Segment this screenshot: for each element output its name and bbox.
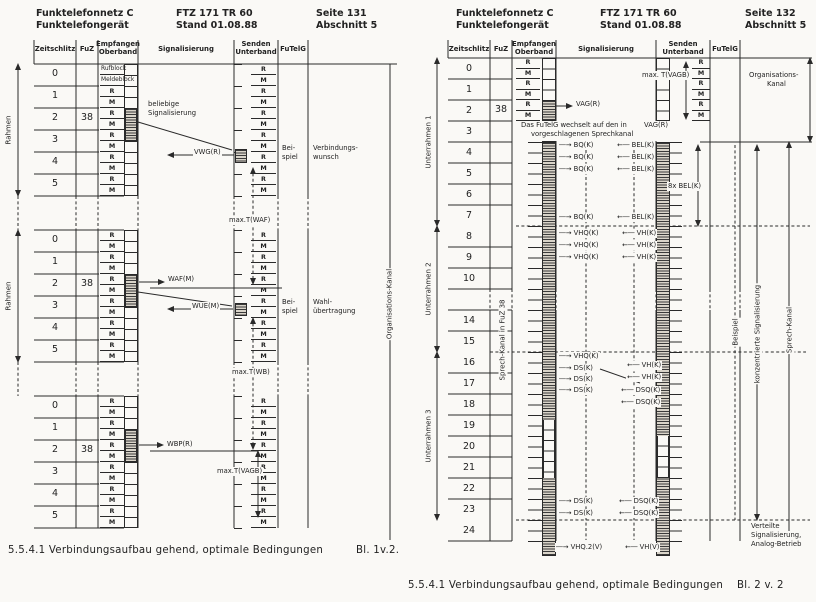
senden-cell: R (251, 86, 276, 97)
senden-cell: R (251, 340, 276, 351)
channel-switch-note-line: Das FuTelG wechselt auf den in (520, 121, 628, 130)
column-header: Empfangen Oberband (84, 40, 152, 57)
doc-ref-left: FTZ 171 TR 60Stand 01.08.88 (176, 8, 258, 31)
empfangen-cell: R (516, 100, 540, 111)
slot-number: 0 (457, 64, 481, 74)
empfangen-cell: M (100, 263, 124, 274)
senden-cell: M (251, 141, 276, 152)
senden-cell: R (251, 174, 276, 185)
empfangen-cell: R (100, 462, 124, 473)
slot-number: 8 (457, 232, 481, 242)
slot-number: 2 (43, 445, 67, 455)
speech-channel-fuz-label: Sprech-Kanal in FuZ 38 (499, 299, 508, 382)
senden-cell: M (251, 97, 276, 108)
empfangen-cell: M (100, 517, 124, 528)
senden-cell: R (692, 58, 710, 69)
slot-number: 0 (43, 235, 67, 245)
empfangen-cell: M (100, 307, 124, 318)
slot-number: 1 (457, 85, 481, 95)
empfangen-cell: R (100, 296, 124, 307)
sig-label: VAG(R) (643, 121, 669, 130)
slot-number: 17 (457, 379, 481, 389)
senden-cell: R (251, 396, 276, 407)
empfangen-cell: R (516, 79, 540, 90)
senden-cell: R (692, 100, 710, 111)
slot-number: 23 (457, 505, 481, 515)
senden-cell: M (692, 90, 710, 101)
senden-cell: M (251, 351, 276, 362)
sig-label: ←― DSQ(K) (620, 386, 661, 395)
sig-label: ←― VH(V) (624, 543, 660, 552)
sig-label: ―→ DS(K) (558, 386, 594, 395)
waf-signal-hatch (125, 274, 137, 307)
senden-cell: M (251, 307, 276, 318)
empfangen-cell: R (100, 274, 124, 285)
slot-number: 4 (43, 323, 67, 333)
slot-number: 5 (43, 179, 67, 189)
empfangen-cell: R (100, 130, 124, 141)
sheet-right: Bl. 2 v. 2 (737, 580, 784, 592)
senden-cell: R (251, 252, 276, 263)
slot-number: 24 (457, 526, 481, 536)
organisation-channel-label: Organisations- (748, 71, 799, 80)
senden-cell: M (692, 69, 710, 80)
slot-number: 6 (457, 190, 481, 200)
empfangen-cell: R (516, 58, 540, 69)
senden-cell: M (251, 163, 276, 174)
slot-number: 4 (457, 148, 481, 158)
slot-number: 3 (43, 467, 67, 477)
senden-cell: R (251, 274, 276, 285)
sig-label: 8x BEL(K) (667, 182, 702, 191)
organisation-channel-label: Kanal (766, 80, 787, 89)
vwg-signal-hatch (235, 149, 247, 163)
empfangen-cell: M (100, 329, 124, 340)
distributed-signalling-label: Verteilte (750, 522, 781, 531)
empfangen-cell: M (100, 97, 124, 108)
empfangen-cell: R (100, 252, 124, 263)
wue-signal-hatch (235, 303, 247, 316)
slot-number: 38 (76, 279, 98, 289)
senden-cell: M (251, 285, 276, 296)
sig-label: ―→ VHQ(K) (558, 241, 600, 250)
empfangen-cell: Rufblock (100, 64, 125, 75)
sig-label: ←― BEL(K) (616, 153, 655, 162)
sig-label: ―→ DS(K) (558, 509, 594, 518)
empfangen-cell: M (100, 351, 124, 362)
slot-number: 5 (43, 511, 67, 521)
annotation: Wahl- (312, 298, 333, 307)
empty-cells-block (543, 420, 555, 478)
organisation-channel-label: Organisations-Kanal (386, 268, 395, 340)
empfangen-cell: R (100, 340, 124, 351)
empfangen-cell: R (100, 440, 124, 451)
sig-label: ―→ VHQ(K) (558, 229, 600, 238)
futelg-example: Bei- (281, 144, 296, 153)
senden-cell: R (251, 506, 276, 517)
senden-cell: M (251, 119, 276, 130)
sig-label: ←― BEL(K) (616, 165, 655, 174)
senden-cell: R (251, 64, 276, 75)
sig-label: max. T(VAGB) (641, 71, 690, 80)
senden-cell: R (251, 230, 276, 241)
sig-label: ―→ BQ(K) (558, 153, 594, 162)
caption-left: 5.5.4.1 Verbindungsaufbau gehend, optima… (8, 545, 323, 557)
beispiel-label: Beispiel (732, 317, 741, 346)
empfangen-cell: R (100, 418, 124, 429)
empfangen-cell: M (516, 90, 540, 101)
sig-label: ―→ DS(K) (558, 497, 594, 506)
sig-label: beliebige (147, 100, 180, 109)
sheet-left: Bl. 1v.2. (356, 545, 399, 557)
sig-label: ←― VH(K) (621, 229, 657, 238)
sig-label: ―→ BQ(K) (558, 213, 594, 222)
senden-cell: R (692, 79, 710, 90)
senden-cell: R (251, 152, 276, 163)
distributed-signalling-label: Signalisierung, (750, 531, 802, 540)
page-title-right: Funktelefonnetz CFunktelefongerät (456, 8, 554, 31)
senden-cell: R (251, 130, 276, 141)
senden-cell: R (251, 318, 276, 329)
sig-label: ←― DSQ(K) (620, 398, 661, 407)
slot-number: 3 (457, 127, 481, 137)
empfangen-cell: M (100, 185, 124, 196)
slot-number: 14 (457, 316, 481, 326)
empfangen-cell: R (100, 230, 124, 241)
speech-uplink-hatch (542, 142, 556, 556)
empfangen-cell: R (100, 396, 124, 407)
empfangen-cell: M (100, 429, 124, 440)
sig-label: WAF(M) (167, 275, 195, 284)
sig-label: ←― VH(K) (621, 241, 657, 250)
empfangen-cell: R (100, 86, 124, 97)
slot-number: 4 (43, 489, 67, 499)
empfangen-cell: R (100, 152, 124, 163)
scanned-diagram-page: Funktelefonnetz CFunktelefongerät FTZ 17… (0, 0, 816, 602)
slot-number: 3 (43, 135, 67, 145)
empfangen-cell: R (100, 174, 124, 185)
empty-cells-block (657, 436, 669, 478)
empfangen-cell: R (100, 484, 124, 495)
column-header: FuTelG (259, 45, 327, 53)
slot-number: 38 (76, 113, 98, 123)
senden-cell: M (251, 451, 276, 462)
senden-cell: R (251, 296, 276, 307)
slot-number: 38 (491, 105, 511, 115)
sig-label: ←― DSQ(K) (618, 509, 659, 518)
empfangen-cell: Meldeblock (100, 75, 125, 86)
page-title-left: Funktelefonnetz CFunktelefongerät (36, 8, 134, 31)
futelg-example: spiel (281, 307, 299, 316)
frame-bracket-label: Rahmen (5, 115, 14, 146)
senden-cell: R (251, 440, 276, 451)
column-header: FuTelG (691, 45, 759, 53)
annotation: Verbindungs- (312, 144, 359, 153)
senden-cell: M (251, 517, 276, 528)
senden-cell: M (251, 185, 276, 196)
senden-cell: R (251, 108, 276, 119)
senden-cell: M (251, 329, 276, 340)
slot-number: 9 (457, 253, 481, 263)
sig-label: max.T(WAF) (228, 216, 271, 225)
senden-cell: R (251, 484, 276, 495)
senden-cell: M (251, 263, 276, 274)
sig-label: Signalisierung (147, 109, 197, 118)
vag-signal-hatch (542, 100, 556, 121)
slot-number: 4 (43, 157, 67, 167)
sig-label: ←― DSQ(K) (618, 497, 659, 506)
empfangen-cell: M (100, 495, 124, 506)
empfangen-cell: M (100, 451, 124, 462)
slot-number: 20 (457, 442, 481, 452)
slot-number: 3 (43, 301, 67, 311)
slot-number: 38 (76, 445, 98, 455)
column-header: Signalisierung (572, 45, 640, 53)
sig-label: max.T(WB) (231, 368, 271, 377)
slot-number: 2 (457, 106, 481, 116)
slot-number: 15 (457, 337, 481, 347)
empfangen-cell: M (100, 473, 124, 484)
senden-cell: M (692, 111, 710, 122)
speech-channel-label: Sprech-Kanal (786, 306, 795, 354)
sig-label: ―→ DS(K) (558, 375, 594, 384)
slot-number: 0 (43, 401, 67, 411)
column-header: Empfangen Oberband (500, 40, 568, 57)
empfangen-cell: M (100, 119, 124, 130)
sig-label: ―→ VHQ(K) (558, 253, 600, 262)
frame-bracket-label: Rahmen (5, 281, 14, 312)
slot-number: 22 (457, 484, 481, 494)
sig-label: ←― VH(K) (626, 373, 662, 382)
doc-ref-right: FTZ 171 TR 60Stand 01.08.88 (600, 8, 682, 31)
speech-downlink-hatch (656, 142, 670, 556)
sig-label: VAG(R) (575, 100, 601, 109)
slot-number: 19 (457, 421, 481, 431)
caption-right: 5.5.4.1 Verbindungsaufbau gehend, optima… (408, 580, 723, 592)
slot-number: 16 (457, 358, 481, 368)
channel-switch-note-line: vorgeschlagenen Sprechkanal (530, 130, 634, 139)
sig-label: ←― VH(K) (621, 253, 657, 262)
slot-number: 10 (457, 274, 481, 284)
senden-cell: R (251, 418, 276, 429)
senden-cell: M (251, 429, 276, 440)
sig-label: WUE(M) (191, 302, 220, 311)
slot-number: 1 (43, 423, 67, 433)
senden-cell: M (251, 241, 276, 252)
slot-number: 0 (43, 69, 67, 79)
sig-label: ←― VH(K) (626, 361, 662, 370)
futelg-example: spiel (281, 153, 299, 162)
sig-label: ―→ BQ(K) (558, 165, 594, 174)
empfangen-cell: R (100, 506, 124, 517)
subframe-bracket-label: Unterrahmen 3 (425, 408, 434, 463)
empfangen-cell: M (100, 285, 124, 296)
annotation: übertragung (312, 307, 356, 316)
sig-label: VWG(R) (193, 148, 222, 157)
sig-label: WBP(R) (166, 440, 194, 449)
wbp-signal-hatch (125, 429, 137, 462)
empfangen-cell: R (100, 108, 124, 119)
empfangen-cell: M (100, 241, 124, 252)
slot-number: 1 (43, 257, 67, 267)
slot-number: 1 (43, 91, 67, 101)
slot-number: 2 (43, 279, 67, 289)
column-header: Signalisierung (152, 45, 220, 53)
slot-number: 7 (457, 211, 481, 221)
senden-cell: M (251, 407, 276, 418)
empfangen-cell: M (100, 141, 124, 152)
empfangen-cell: M (100, 407, 124, 418)
senden-cell: M (251, 495, 276, 506)
empfangen-cell: M (516, 69, 540, 80)
empfangen-cell: M (516, 111, 540, 122)
empfangen-cell: R (100, 318, 124, 329)
sig-label: ―→ BQ(K) (558, 141, 594, 150)
concentrated-signalling-label: konzentrierte Signalisierung (754, 284, 763, 385)
futelg-example: Bei- (281, 298, 296, 307)
distributed-signalling-label: Analog-Betrieb (750, 540, 802, 549)
slot-number: 21 (457, 463, 481, 473)
sig-label: max.T(VAGB) (216, 467, 263, 476)
sig-label: ―→ VHQ(K) (558, 352, 600, 361)
slot-number: 5 (43, 345, 67, 355)
subframe-bracket-label: Unterrahmen 1 (425, 114, 434, 169)
slot-number: 5 (457, 169, 481, 179)
page-number-left: Seite 131Abschnitt 5 (316, 8, 377, 31)
empfangen-cell: M (100, 163, 124, 174)
beliebige-signal-hatch (125, 108, 137, 141)
page-number-right: Seite 132Abschnitt 5 (745, 8, 806, 31)
slot-number: 2 (43, 113, 67, 123)
senden-cell: M (251, 75, 276, 86)
sig-label: ―→ VHQ.2(V) (555, 543, 603, 552)
annotation: wunsch (312, 153, 340, 162)
sig-label: ←― BEL(K) (616, 141, 655, 150)
slot-number: 18 (457, 400, 481, 410)
subframe-bracket-label: Unterrahmen 2 (425, 261, 434, 316)
sig-label: ―→ DS(K) (558, 364, 594, 373)
sig-label: ←― BEL(K) (616, 213, 655, 222)
